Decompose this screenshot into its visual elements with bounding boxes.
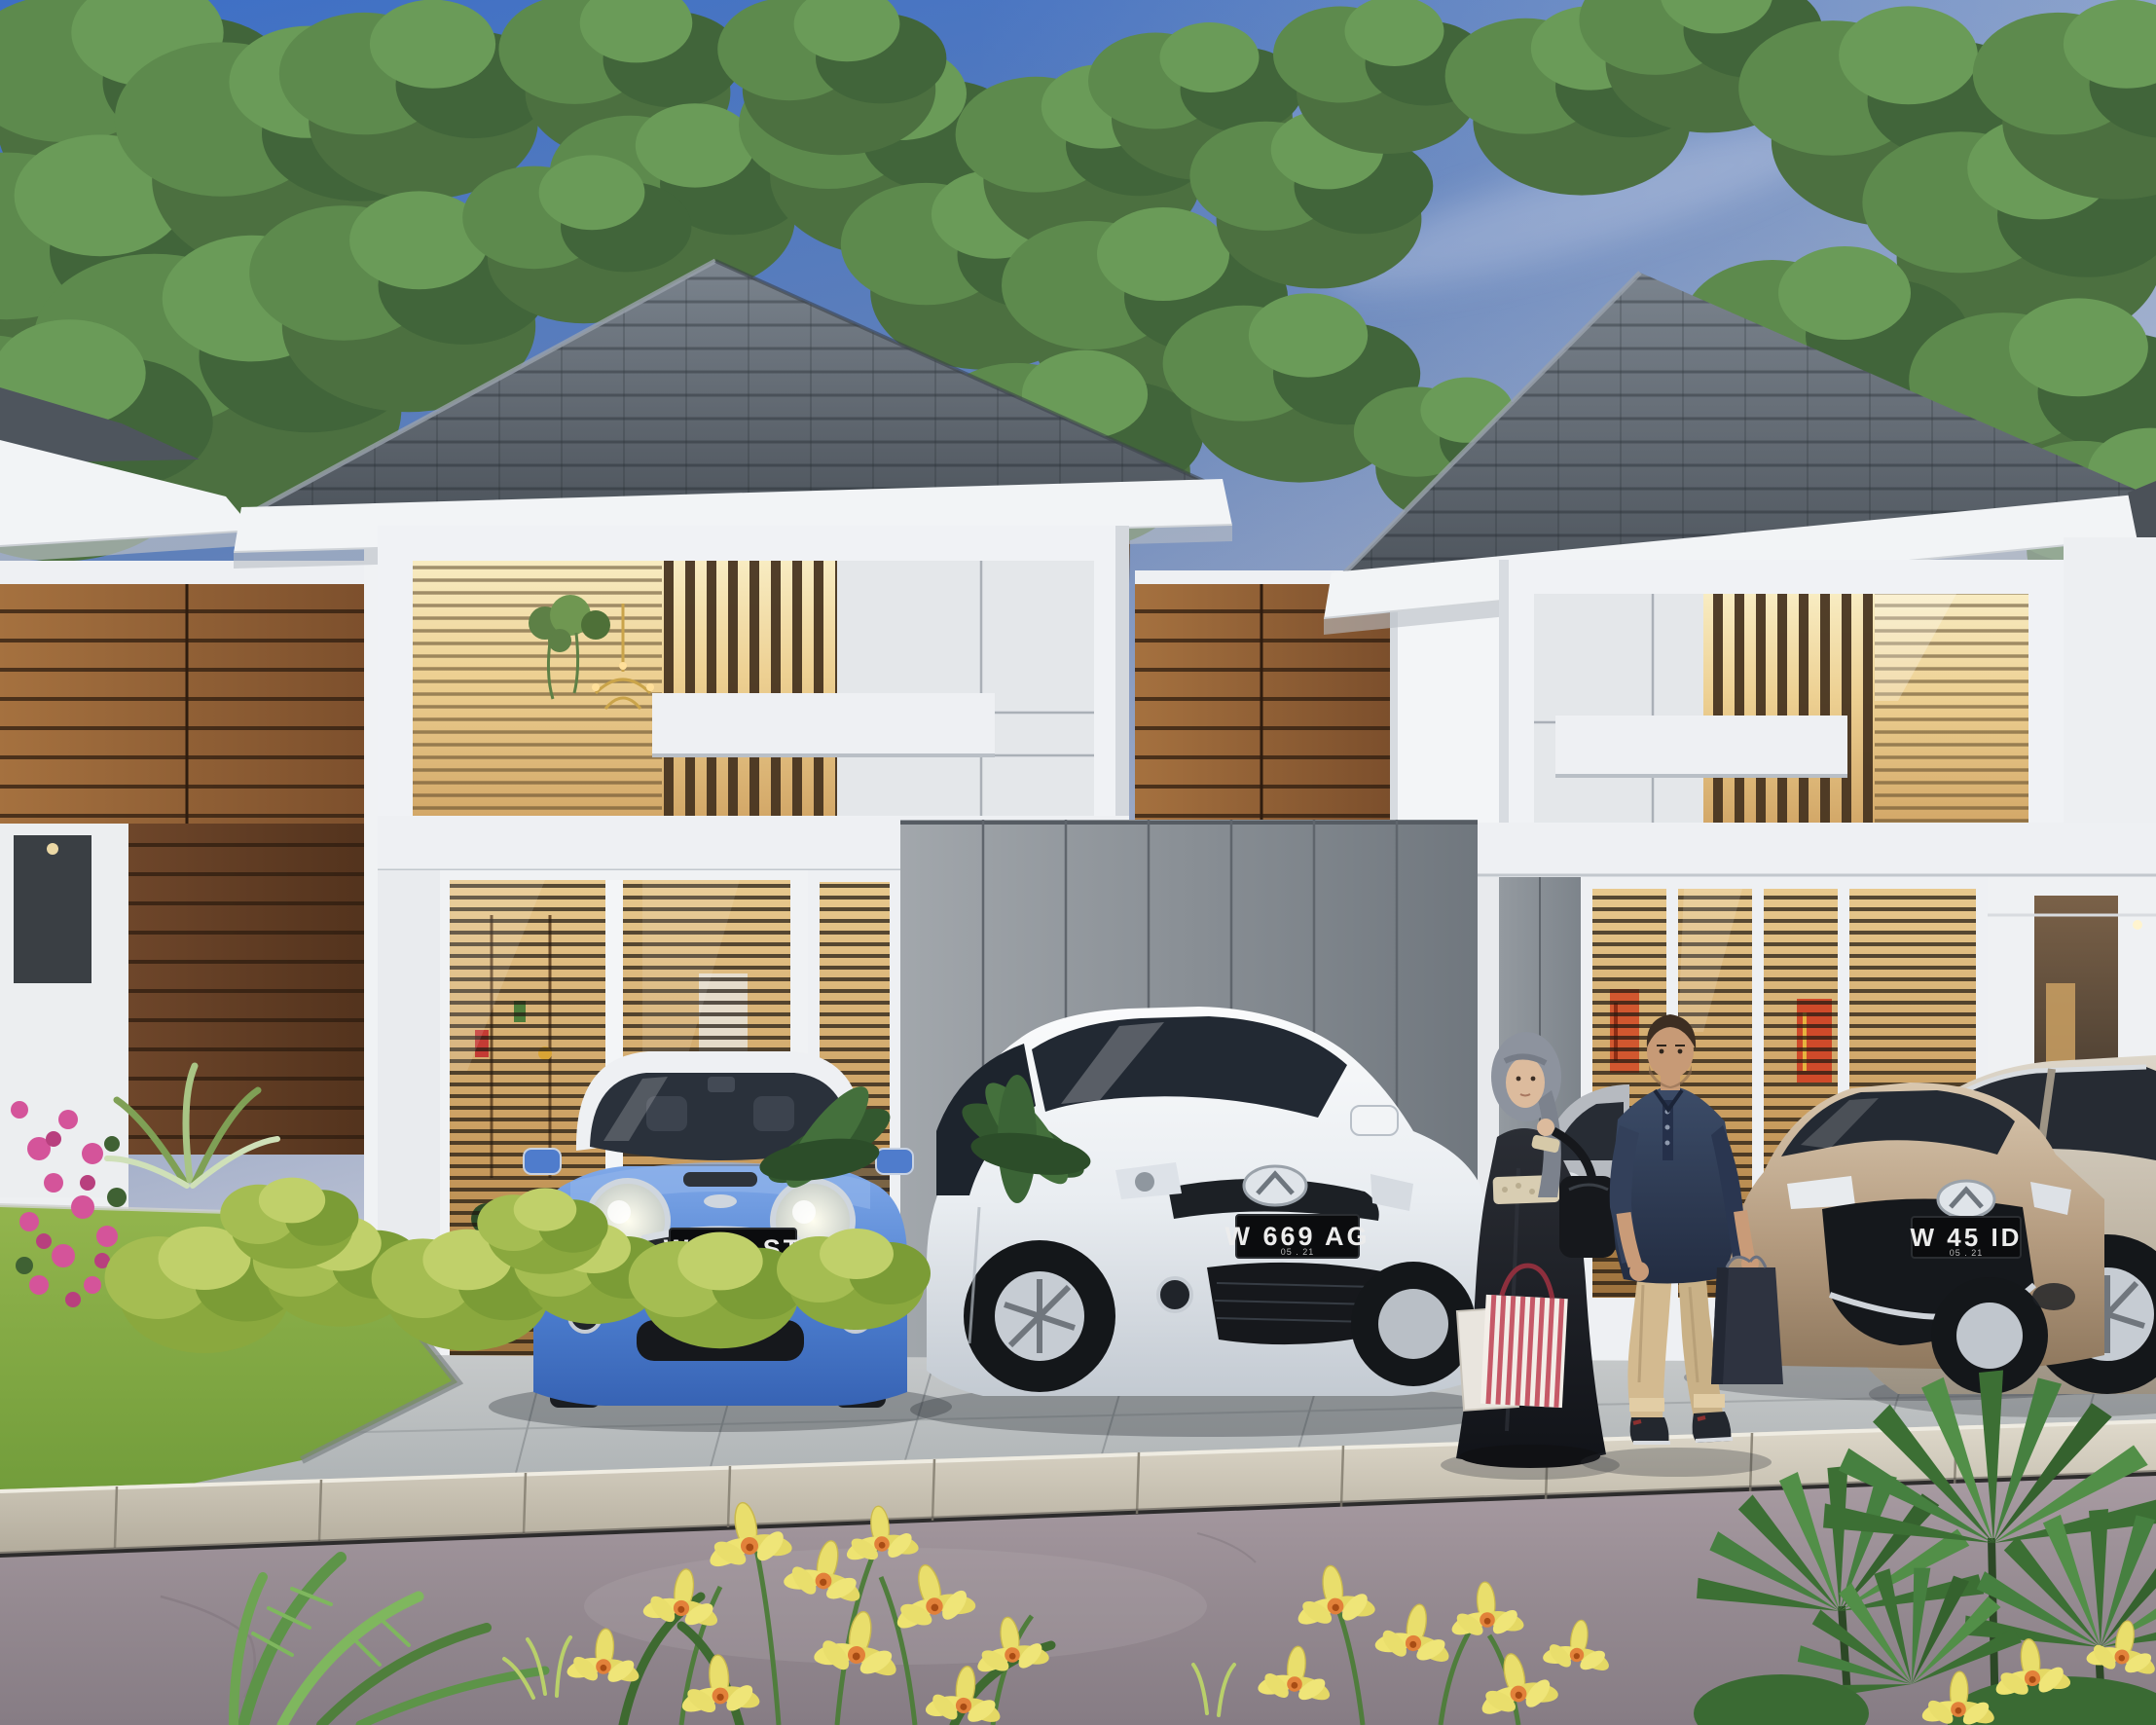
upper-box-right — [1499, 560, 2064, 857]
scene-canvas: W 45 ID 05 . 21 W 669 AG 05 . 21 — [0, 0, 2156, 1725]
accent-bar-left — [652, 693, 995, 755]
slat-screen-right — [1703, 594, 1875, 823]
abaya-hem — [1460, 1445, 1600, 1468]
man-forearm-right — [1740, 1211, 1748, 1258]
mini-mirror-left — [524, 1149, 561, 1174]
shopping-bag-dark — [1711, 1257, 1783, 1384]
mini-hood-scoop — [683, 1172, 757, 1187]
accent-bar-right — [1555, 716, 1847, 776]
cx7-foglight — [1158, 1278, 1191, 1311]
woman-hand — [1537, 1119, 1554, 1136]
woman-face — [1506, 1057, 1545, 1108]
slat-screen-left — [662, 561, 837, 816]
license-plate-cx7: W 669 AG 05 . 21 — [1224, 1215, 1370, 1258]
license-plate-mazda3: W 45 ID 05 . 21 — [1911, 1217, 2023, 1258]
plate-expiry-mazda3: 05 . 21 — [1950, 1248, 1984, 1258]
mini-mirror-right — [876, 1149, 913, 1174]
neighbor-door — [14, 835, 91, 983]
plate-expiry-cx7: 05 . 21 — [1281, 1247, 1315, 1257]
architectural-rendering: W 45 ID 05 . 21 W 669 AG 05 . 21 — [0, 0, 2156, 1725]
upper-box-left — [378, 526, 1129, 847]
mini-badge — [704, 1194, 737, 1208]
